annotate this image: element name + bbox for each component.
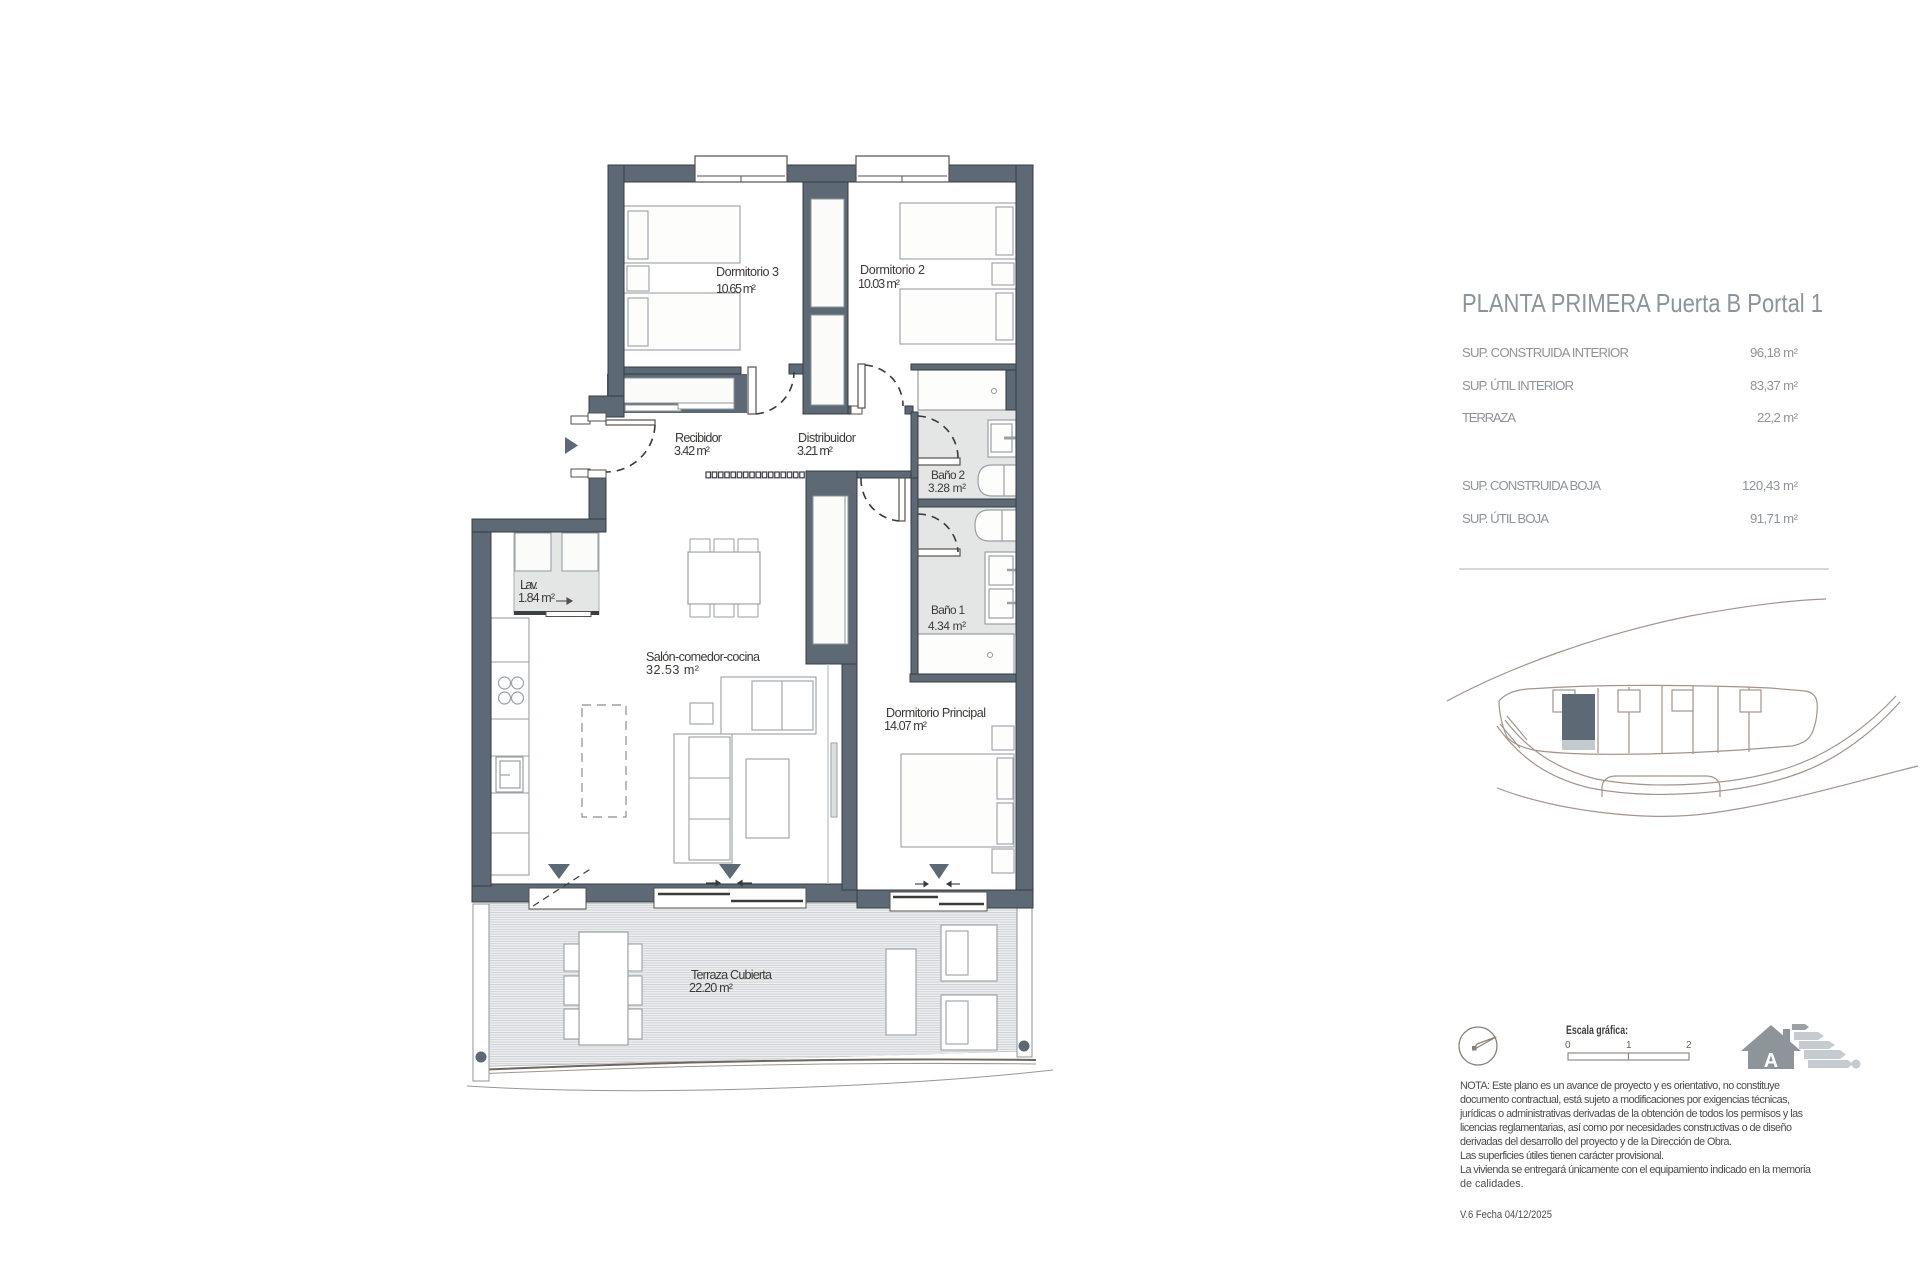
svg-text:10.65 m²: 10.65 m² [716, 282, 756, 296]
svg-text:V.6 Fecha 04/12/2025: V.6 Fecha 04/12/2025 [1460, 1209, 1552, 1221]
svg-text:NOTA: Este plano es un avance: NOTA: Este plano es un avance de proyect… [1460, 1080, 1780, 1092]
svg-text:Baño 2: Baño 2 [931, 468, 965, 482]
svg-text:22.20 m²: 22.20 m² [689, 981, 733, 995]
svg-text:14.07 m²: 14.07 m² [884, 719, 927, 733]
svg-text:83,37 m²: 83,37 m² [1750, 378, 1799, 393]
svg-text:Recibidor: Recibidor [675, 431, 722, 445]
svg-text:3.28 m²: 3.28 m² [928, 481, 966, 495]
svg-text:91,71 m²: 91,71 m² [1750, 511, 1799, 526]
svg-text:120,43 m²: 120,43 m² [1742, 478, 1799, 493]
svg-text:Dormitorio 2: Dormitorio 2 [860, 263, 925, 277]
svg-text:jurídicas o administrativas de: jurídicas o administrativas derivadas de… [1459, 1108, 1804, 1120]
svg-text:96,18 m²: 96,18 m² [1750, 345, 1799, 360]
svg-text:32.53 m²: 32.53 m² [646, 663, 699, 677]
svg-text:22,2 m²: 22,2 m² [1757, 410, 1799, 425]
svg-text:Distribuidor: Distribuidor [798, 431, 856, 445]
svg-text:Las superficies útiles tienen: Las superficies útiles tienen carácter p… [1460, 1150, 1664, 1162]
svg-text:Terraza Cubierta: Terraza Cubierta [691, 968, 772, 982]
svg-text:SUP. ÚTIL BOJA: SUP. ÚTIL BOJA [1462, 511, 1549, 526]
svg-text:La vivienda se entregará única: La vivienda se entregará únicamente con … [1460, 1164, 1811, 1176]
svg-text:Dormitorio 3: Dormitorio 3 [716, 265, 779, 279]
svg-text:Baño 1: Baño 1 [931, 603, 965, 617]
svg-text:Dormitorio Principal: Dormitorio Principal [886, 706, 986, 720]
svg-text:licencias reglamentarias, así: licencias reglamentarias, así como por n… [1460, 1122, 1792, 1134]
svg-text:2: 2 [1686, 1040, 1692, 1051]
svg-text:documento contractual, está su: documento contractual, está sujeto a mod… [1460, 1094, 1790, 1106]
svg-text:derivadas del desarrollo del p: derivadas del desarrollo del proyecto y … [1460, 1136, 1732, 1148]
svg-text:3.42 m²: 3.42 m² [674, 444, 710, 458]
svg-text:Escala gráfica:: Escala gráfica: [1566, 1025, 1628, 1037]
svg-text:10.03 m²: 10.03 m² [858, 277, 900, 291]
svg-text:SUP. CONSTRUIDA BOJA: SUP. CONSTRUIDA BOJA [1462, 478, 1601, 493]
svg-text:PLANTA PRIMERA Puerta B Port: PLANTA PRIMERA Puerta B Portal 1 [1462, 288, 1823, 318]
svg-text:1: 1 [1626, 1040, 1632, 1051]
svg-text:A: A [1764, 1050, 1778, 1072]
svg-text:1.84 m²: 1.84 m² [518, 591, 555, 605]
svg-text:Lav.: Lav. [520, 578, 538, 592]
svg-text:TERRAZA: TERRAZA [1462, 410, 1516, 425]
svg-text:3.21 m²: 3.21 m² [797, 444, 833, 458]
svg-text:SUP. ÚTIL INTERIOR: SUP. ÚTIL INTERIOR [1462, 378, 1574, 393]
svg-text:4.34 m²: 4.34 m² [928, 619, 966, 633]
svg-text:0: 0 [1565, 1040, 1571, 1051]
svg-text:Salón-comedor-cocina: Salón-comedor-cocina [646, 650, 760, 664]
svg-text:de calidades.: de calidades. [1460, 1178, 1524, 1190]
svg-text:SUP. CONSTRUIDA INTERIOR: SUP. CONSTRUIDA INTERIOR [1462, 345, 1629, 360]
